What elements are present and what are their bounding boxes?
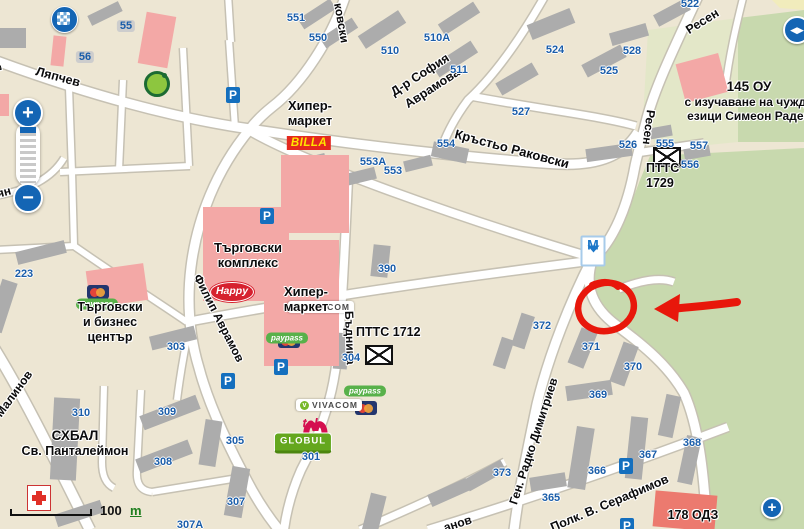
red-arrow-shaft bbox=[672, 302, 737, 309]
annotation-layer bbox=[0, 0, 804, 529]
pan-button[interactable]: ◀▶ bbox=[783, 16, 804, 44]
red-circle-overshoot bbox=[592, 282, 618, 287]
map-canvas[interactable]: PPPPPPМpaypasspaypasspaypassvVIVACOMvVIV… bbox=[0, 0, 804, 529]
zoom-in-secondary-button[interactable]: + bbox=[761, 497, 783, 519]
zoom-slider[interactable] bbox=[20, 127, 36, 183]
zoom-level-indicator bbox=[20, 127, 36, 133]
pan-arrows-icon: ◀▶ bbox=[790, 25, 804, 35]
scale-line bbox=[10, 509, 92, 516]
red-arrow-head bbox=[654, 294, 680, 322]
zoom-out-button[interactable]: − bbox=[13, 183, 43, 213]
map-overview-button[interactable] bbox=[51, 6, 78, 33]
zoom-in-button[interactable]: + bbox=[13, 98, 43, 128]
checkerboard-icon bbox=[57, 12, 70, 25]
red-circle-annotation bbox=[574, 278, 639, 337]
scale-value: 100 bbox=[100, 503, 122, 518]
scale-unit-link[interactable]: m bbox=[130, 503, 142, 518]
